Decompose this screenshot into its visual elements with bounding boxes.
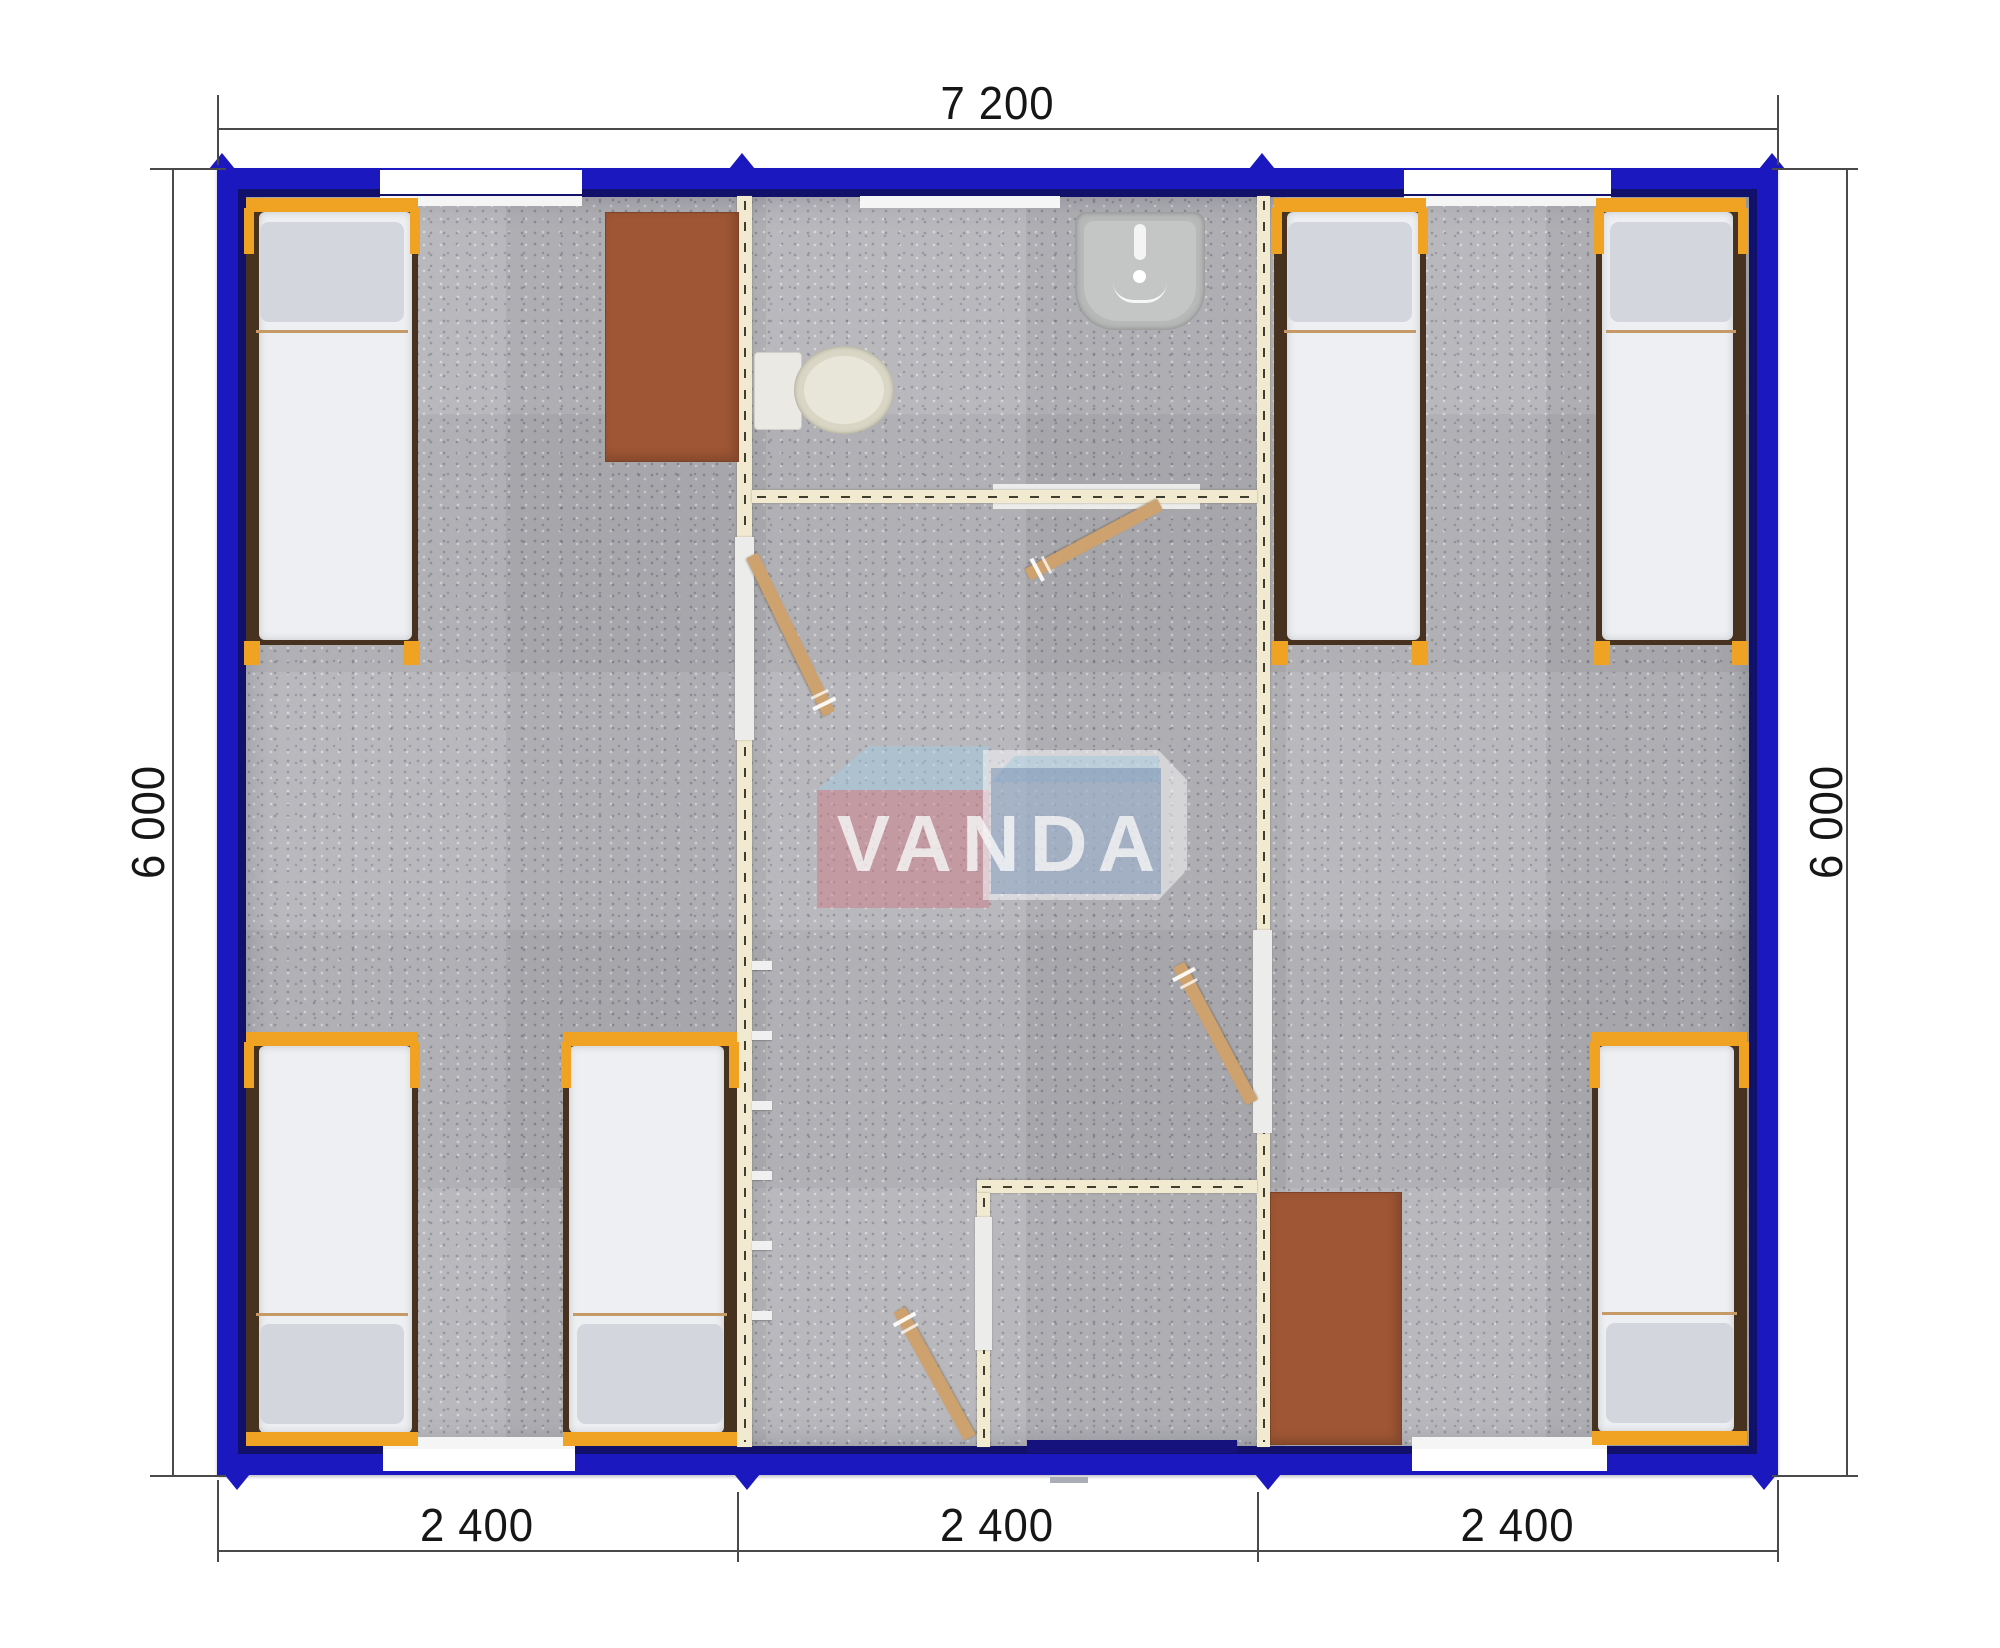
bed-right-top-2-post [1594, 208, 1604, 254]
dimension-left: 6 000 [121, 765, 175, 879]
bed-left-top-frame-line [256, 330, 408, 333]
sill-bottom-right [1412, 1437, 1607, 1449]
vestibule-wall-front-insulation [982, 1186, 1252, 1188]
wall-hook [752, 1101, 772, 1110]
washbasin [1075, 212, 1205, 330]
bathroom-wall [752, 490, 1257, 503]
sill-bathroom [860, 196, 1060, 208]
dimension-right: 6 000 [1799, 765, 1853, 879]
bed-right-top-2-frame-line [1606, 330, 1736, 333]
bed-right-bottom-frame-line [1602, 1312, 1737, 1315]
bed-left-top-post [410, 208, 420, 254]
bed-left-bottom-2-headboard [563, 1032, 737, 1046]
door-left-room-handle [811, 689, 829, 700]
bed-right-top-1-pillow [1288, 222, 1412, 322]
ext-right-lower [1772, 1475, 1858, 1477]
bed-left-bottom-1-headboard [246, 1032, 418, 1046]
door-right-room-handle [1180, 978, 1198, 990]
bed-right-bottom-post [1590, 1042, 1600, 1088]
dimension-bottom-module-2: 2 400 [750, 1498, 1244, 1552]
window-bottom-left [383, 1449, 575, 1471]
vanda-logo-text: VANDA [815, 798, 1187, 890]
bed-right-top-2-post [1738, 208, 1748, 254]
bed-right-top-1 [1274, 198, 1426, 645]
desk-left-room [605, 212, 739, 462]
bed-right-top-2-footpost [1594, 641, 1610, 665]
bed-right-bottom [1592, 1032, 1747, 1445]
door-entry-handle [901, 1323, 919, 1335]
ext-top-right [1777, 95, 1779, 165]
door-opening-right-room [1253, 930, 1272, 1133]
desk-right-room [1270, 1192, 1402, 1445]
window-top-left [380, 170, 582, 194]
bed-right-top-1-post [1418, 208, 1428, 254]
door-bathroom-handle [1041, 556, 1053, 574]
bed-left-bottom-2 [563, 1032, 737, 1446]
container-joint-notch [1249, 153, 1275, 169]
door-left-room-handle [812, 697, 836, 712]
bed-right-top-1-frame-line [1284, 330, 1416, 333]
floor-plan-canvas: 7 200 6 000 6 000 2 400 2 400 2 400 VAND… [0, 0, 2000, 1648]
container-joint-notch [209, 153, 235, 169]
bed-left-bottom-2-frame-line [573, 1313, 727, 1316]
bed-right-top-1-footpost [1412, 641, 1428, 665]
wall-hook [752, 1311, 772, 1320]
bed-left-bottom-2-footboard [563, 1432, 737, 1446]
bed-left-top-pillow [260, 222, 404, 322]
wall-hook [752, 1171, 772, 1180]
partition-wall-left-insulation [744, 201, 746, 1442]
bed-left-bottom-1 [246, 1032, 418, 1446]
ext-right-upper [1772, 168, 1858, 170]
container-joint-notch [1759, 153, 1785, 169]
bed-left-bottom-2-post [561, 1042, 571, 1088]
dimension-bottom-module-1: 2 400 [230, 1498, 724, 1552]
bed-left-bottom-1-frame-line [256, 1313, 408, 1316]
bed-left-top-headboard [246, 198, 418, 212]
entry-door-leaf [1027, 1440, 1237, 1453]
dim-line-right [1846, 168, 1848, 1475]
ext-top-left [217, 95, 219, 165]
vanda-logo: VANDA [815, 740, 1187, 915]
ext-bottom-1 [217, 1480, 219, 1562]
window-top-right [1404, 170, 1611, 194]
container-joint-notch [224, 1474, 250, 1490]
ext-bottom-3 [1257, 1492, 1259, 1562]
wall-hook [752, 1241, 772, 1250]
bed-left-bottom-1-post [410, 1042, 420, 1088]
dimension-bottom-module-3: 2 400 [1270, 1498, 1765, 1552]
bed-left-bottom-2-pillow [577, 1324, 723, 1424]
bed-right-bottom-footboard [1592, 1431, 1747, 1445]
bed-right-bottom-post [1739, 1042, 1749, 1088]
bed-right-bottom-headboard [1592, 1032, 1747, 1046]
dim-line-top [217, 128, 1778, 130]
door-entry [894, 1307, 976, 1441]
ext-left-lower [150, 1475, 226, 1477]
bed-right-top-2 [1596, 198, 1746, 645]
bathroom-wall-insulation [757, 496, 1252, 498]
dimension-top: 7 200 [256, 76, 1739, 130]
partition-wall-right-insulation [1263, 201, 1265, 1442]
wall-hook [752, 1031, 772, 1040]
partition-wall-left [737, 196, 752, 1447]
bed-right-top-1-post [1272, 208, 1282, 254]
door-right-room [1173, 962, 1258, 1106]
window-bottom-right [1412, 1449, 1607, 1471]
vestibule-wall-front [977, 1180, 1257, 1193]
dim-line-left [172, 168, 174, 1475]
door-opening-vestibule [975, 1217, 992, 1350]
bed-right-top-1-footpost [1272, 641, 1288, 665]
bed-left-top-post [244, 208, 254, 254]
partition-wall-right [1257, 196, 1270, 1447]
door-bathroom [1025, 499, 1164, 581]
bed-left-bottom-1-pillow [260, 1324, 404, 1424]
logo-box-top-face-icon [817, 746, 989, 790]
toilet-bowl-rim [804, 356, 884, 424]
container-joint-notch [729, 153, 755, 169]
ext-bottom-2 [737, 1492, 739, 1562]
washbasin-faucet-icon [1134, 224, 1146, 260]
bed-left-bottom-1-post [244, 1042, 254, 1088]
bed-left-top-footpost [404, 641, 420, 665]
entry-step [1050, 1477, 1088, 1483]
container-joint-notch [1255, 1474, 1281, 1490]
bed-left-top-footpost [244, 641, 260, 665]
bed-right-top-1-headboard [1274, 198, 1426, 212]
bed-right-top-2-footpost [1732, 641, 1748, 665]
bed-left-top [246, 198, 418, 645]
wall-hook [752, 961, 772, 970]
door-left-room [746, 553, 835, 717]
toilet [754, 346, 896, 434]
dim-line-bottom [217, 1550, 1778, 1552]
sill-top-right [1404, 196, 1611, 206]
container-joint-notch [734, 1474, 760, 1490]
bed-left-bottom-1-footboard [246, 1432, 418, 1446]
ext-bottom-4 [1777, 1480, 1779, 1562]
ext-left-upper [150, 168, 226, 170]
bed-right-top-2-pillow [1610, 222, 1732, 322]
bed-right-top-2-headboard [1596, 198, 1746, 212]
bed-right-bottom-pillow [1606, 1323, 1733, 1423]
bed-left-bottom-2-post [729, 1042, 739, 1088]
